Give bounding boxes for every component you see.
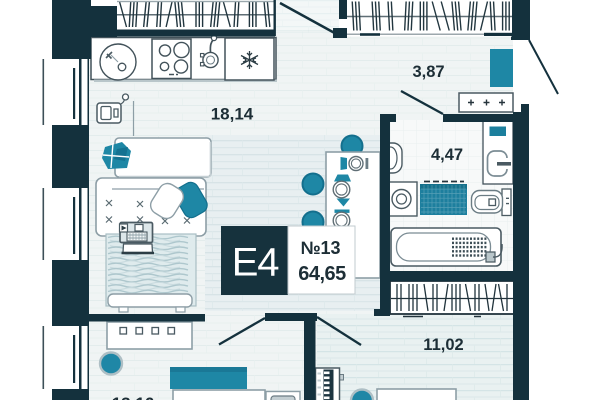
svg-text:18,14: 18,14: [211, 105, 254, 124]
svg-text:3,87: 3,87: [412, 63, 444, 81]
svg-text:E4: E4: [232, 241, 279, 285]
svg-text:64,65: 64,65: [298, 263, 346, 285]
svg-text:№13: №13: [300, 238, 340, 258]
svg-text:13,16: 13,16: [112, 394, 155, 400]
svg-text:4,47: 4,47: [431, 146, 463, 164]
svg-text:11,02: 11,02: [423, 336, 463, 354]
